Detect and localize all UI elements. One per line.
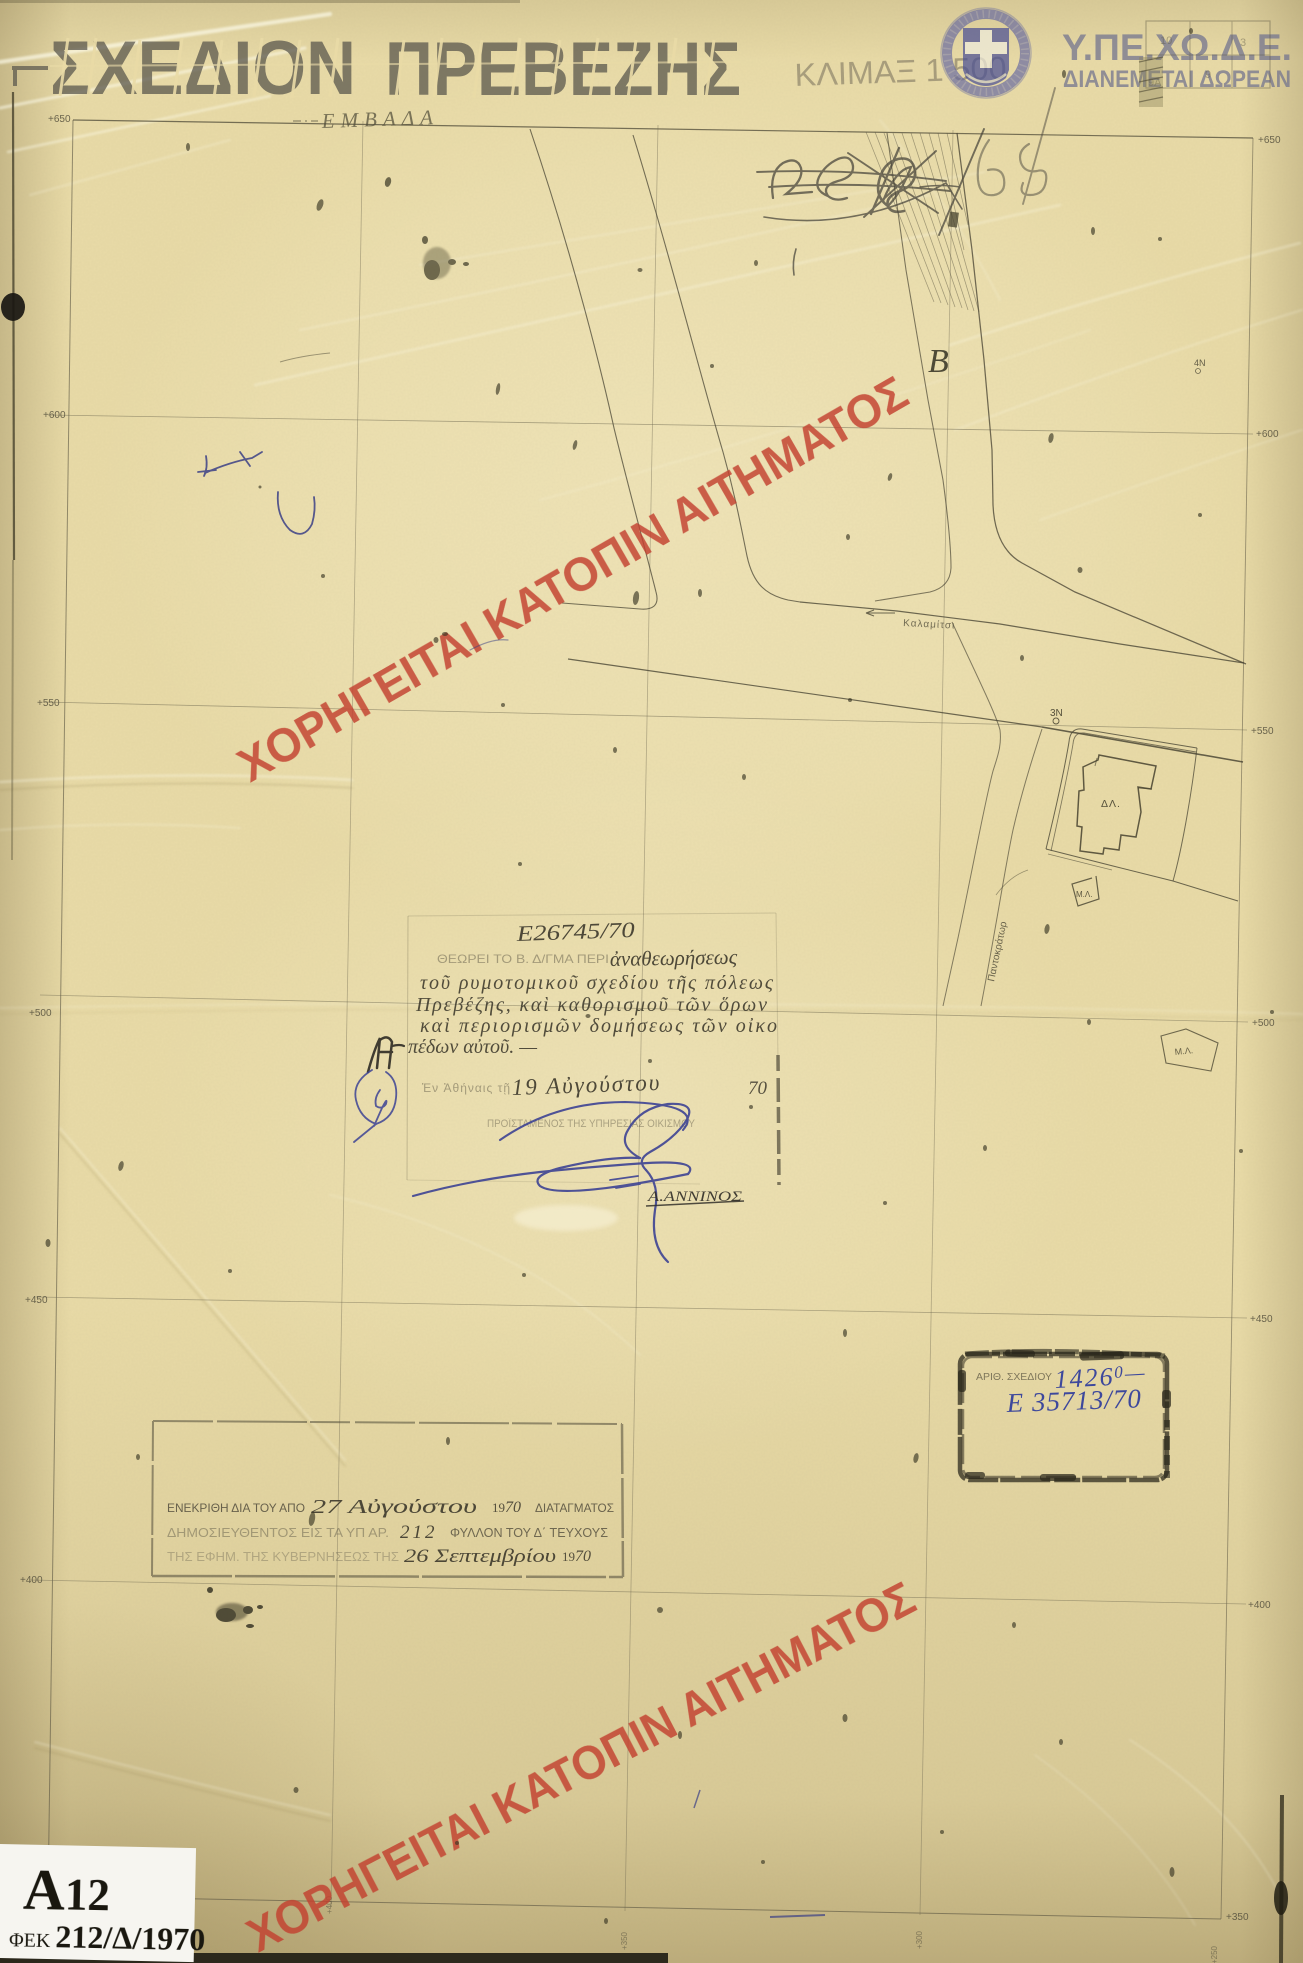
svg-text:+500: +500 [1252, 1018, 1275, 1029]
svg-text:Υ.ΠΕ.ΧΩ.Δ.Ε.: Υ.ΠΕ.ΧΩ.Δ.Ε. [1062, 27, 1292, 68]
svg-text:Μ.Λ.: Μ.Λ. [1076, 890, 1092, 899]
svg-text:+600: +600 [1256, 429, 1279, 440]
svg-text:E26745/70: E26745/70 [515, 917, 635, 946]
svg-text:Α.ΑΝΝΙΝΟΣ: Α.ΑΝΝΙΝΟΣ [647, 1189, 742, 1205]
svg-text:+500: +500 [29, 1008, 52, 1019]
svg-text:1970: 1970 [492, 1499, 521, 1516]
svg-text:ἀναθεωρήσεως: ἀναθεωρήσεως [610, 945, 738, 971]
svg-text:+250: +250 [1210, 1945, 1219, 1963]
svg-text:+550: +550 [37, 698, 60, 709]
svg-text:ΑΡΙΘ. ΣΧΕΔΙΟΥ: ΑΡΙΘ. ΣΧΕΔΙΟΥ [976, 1372, 1052, 1383]
svg-text:ΔΗΜΟΣΙΕΥΘΕΝΤΟΣ ΕΙΣ ΤΑ ΥΠ ΑΡ.: ΔΗΜΟΣΙΕΥΘΕΝΤΟΣ ΕΙΣ ΤΑ ΥΠ ΑΡ. [167, 1526, 389, 1540]
svg-text:ΦΥΛΛΟΝ ΤΟΥ Δ΄ ΤΕΥΧΟΥΣ: ΦΥΛΛΟΝ ΤΟΥ Δ΄ ΤΕΥΧΟΥΣ [450, 1526, 608, 1540]
svg-text:+600: +600 [43, 410, 66, 421]
svg-text:Ε 35713/70: Ε 35713/70 [1005, 1383, 1142, 1418]
svg-text:+550: +550 [1251, 726, 1274, 737]
svg-text:πέδων αὐτοῦ. —: πέδων αὐτοῦ. — [408, 1036, 537, 1058]
svg-text:+400: +400 [20, 1575, 43, 1586]
svg-text:27 Αὐγούστου: 27 Αὐγούστου [311, 1496, 477, 1518]
svg-text:1970: 1970 [562, 1548, 591, 1565]
svg-text:ΕΝΕΚΡΙΘΗ ΔΙΑ ΤΟΥ ΑΠΟ: ΕΝΕΚΡΙΘΗ ΔΙΑ ΤΟΥ ΑΠΟ [167, 1501, 305, 1515]
svg-text:212: 212 [400, 1522, 438, 1543]
svg-text:+300: +300 [915, 1930, 924, 1949]
svg-text:+650: +650 [48, 114, 71, 125]
svg-text:+450: +450 [1250, 1314, 1273, 1325]
svg-text:Ἐν Ἀθήναις τῇ: Ἐν Ἀθήναις τῇ [422, 1081, 511, 1095]
svg-text:4N: 4N [1194, 358, 1206, 368]
svg-text:9: 9 [1205, 69, 1211, 81]
svg-text:ΕΜΒΑΔΑ: ΕΜΒΑΔΑ [320, 105, 439, 133]
svg-text:ΘΕΩΡΕΙ ΤΟ Β. Δ/ΓΜΑ ΠΕΡΙ: ΘΕΩΡΕΙ ΤΟ Β. Δ/ΓΜΑ ΠΕΡΙ [437, 952, 609, 966]
svg-text:26 Σεπτεμβρίου: 26 Σεπτεμβρίου [404, 1546, 556, 1567]
svg-text:3N: 3N [1050, 708, 1063, 719]
svg-text:+350: +350 [620, 1931, 629, 1950]
svg-text:+400: +400 [1248, 1600, 1271, 1611]
svg-text:19 Αὐγούστου: 19 Αὐγούστου [511, 1070, 661, 1100]
svg-text:+350: +350 [1226, 1912, 1249, 1923]
svg-text:B: B [928, 343, 949, 380]
svg-text:+450: +450 [25, 1295, 48, 1306]
svg-text:καὶ περιορισμῶν δομήσεως τῶν ο: καὶ περιορισμῶν δομήσεως τῶν οἰκο [420, 1015, 777, 1037]
svg-text:ΔΛ.: ΔΛ. [1101, 798, 1121, 810]
svg-text:10: 10 [1160, 35, 1172, 47]
svg-text:ΤΗΣ ΕΦΗΜ. ΤΗΣ ΚΥΒΕΡΝΗΣΕΩΣ ΤΗΣ: ΤΗΣ ΕΦΗΜ. ΤΗΣ ΚΥΒΕΡΝΗΣΕΩΣ ΤΗΣ [167, 1550, 399, 1564]
svg-text:ΔΙΑΤΑΓΜΑΤΟΣ: ΔΙΑΤΑΓΜΑΤΟΣ [535, 1501, 614, 1515]
svg-text:Μ.Λ.: Μ.Λ. [1174, 1045, 1193, 1057]
svg-text:+650: +650 [1258, 135, 1281, 146]
svg-text:3: 3 [1240, 37, 1246, 49]
svg-text:ΔΙΑΝΕΜΕΤΑΙ ΔΩΡΕΑΝ: ΔΙΑΝΕΜΕΤΑΙ ΔΩΡΕΑΝ [1063, 66, 1291, 93]
svg-text:70: 70 [748, 1078, 768, 1099]
